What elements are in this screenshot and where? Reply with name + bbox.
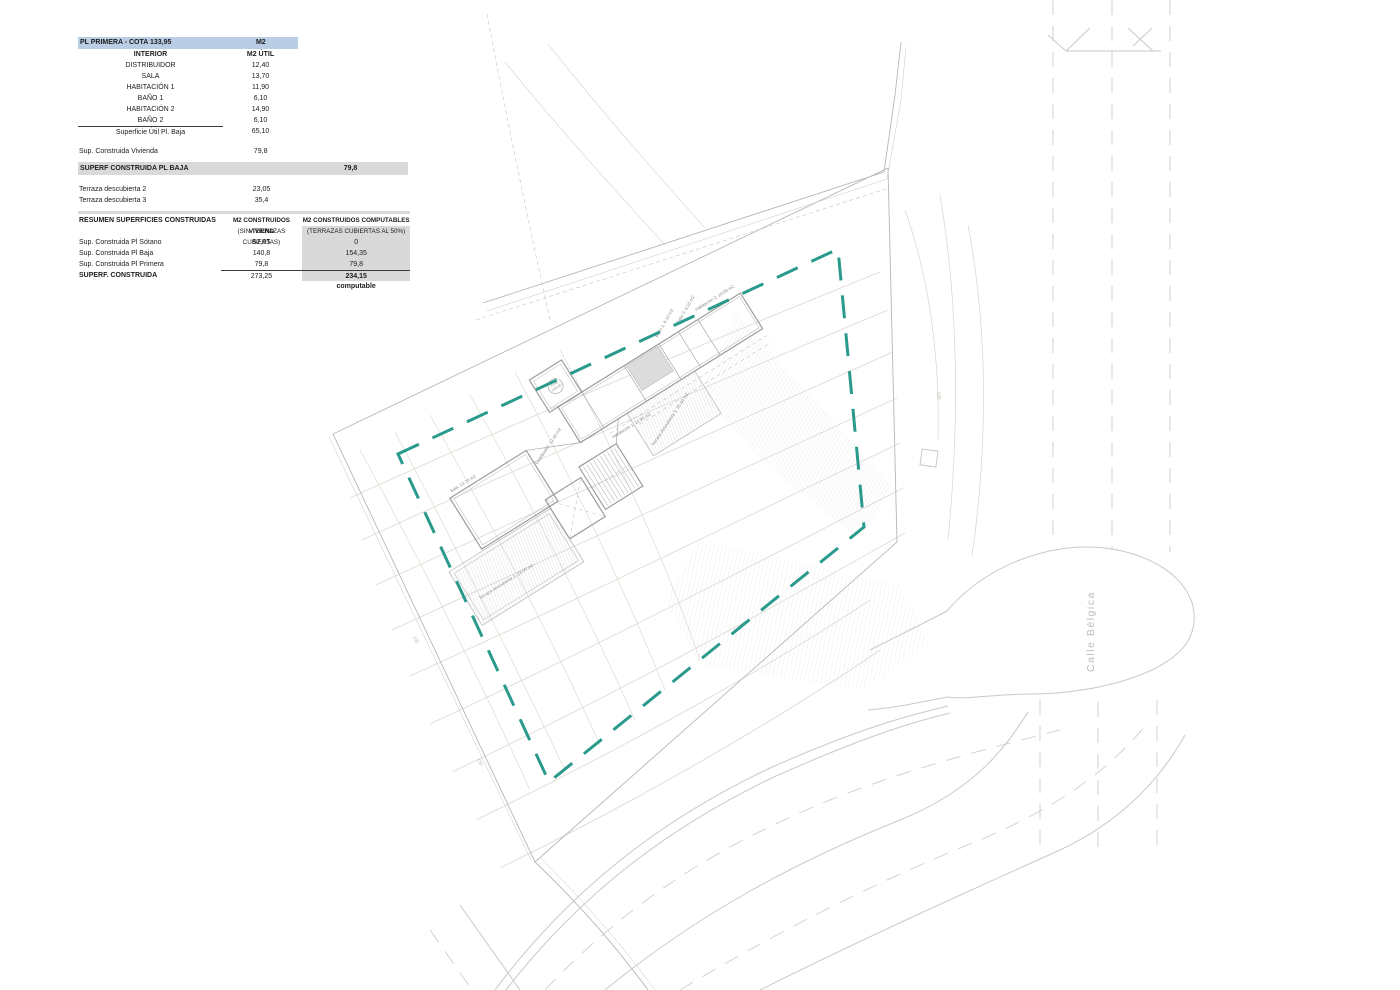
site-plan-sheet: 135 130 130 Calle xyxy=(0,0,1400,990)
road-bottom xyxy=(430,706,1185,990)
table-pl-primera-header: PL PRIMERA - COTA 133,95 M2 xyxy=(78,37,298,49)
roof-shaded-block xyxy=(627,346,674,390)
contour-label-130-right: 130 xyxy=(936,392,942,401)
table-row: SALA 13,70 xyxy=(78,71,298,82)
plot-limit-dashed xyxy=(398,249,864,782)
table-row: Terraza descubierta 2 23,05 xyxy=(78,184,408,195)
t3-footnote-row: computable xyxy=(78,281,410,292)
table-row: HABITACIÓN 2 14,90 xyxy=(78,104,298,115)
t1-header-title: PL PRIMERA - COTA 133,95 xyxy=(78,37,224,49)
slope-hatch-areas xyxy=(665,310,930,690)
t2-header: SUPERF CONSTRUIDA PL BAJA 79,8 xyxy=(78,162,408,175)
road-calle-belgica: Calle Bélgica xyxy=(868,0,1194,848)
table-resumen: RESUMEN SUPERFICIES CONSTRUIDAS M2 CONST… xyxy=(78,211,410,292)
table-row: HABITACIÓN 1 11,90 xyxy=(78,82,298,93)
bridge-icon xyxy=(1048,28,1161,51)
t3-subheader: (SIN TERRAZAS CUBIERTAS) (TERRAZAS CUBIE… xyxy=(78,226,410,237)
table-row: BAÑO 2 6,10 xyxy=(78,115,298,126)
table-row: BAÑO 1 6,10 xyxy=(78,93,298,104)
street-name-label: Calle Bélgica xyxy=(1085,591,1097,672)
t1-header-m2: M2 xyxy=(224,37,298,49)
utility-box xyxy=(920,449,938,467)
t3-total-row: SUPERF. CONSTRUIDA 273,25 234,15 xyxy=(78,270,410,281)
table-row: Sup. Construida Pl Primera 79,8 79,8 xyxy=(78,259,410,270)
terrace-2-hatch xyxy=(449,508,584,625)
table-row: Sup. Construida Pl Sótano 52,65 0 xyxy=(78,237,410,248)
contour-lines: 135 130 130 xyxy=(350,44,984,868)
t3-header: RESUMEN SUPERFICIES CONSTRUIDAS M2 CONST… xyxy=(78,215,410,226)
table-row: Sup. Construida Pl Baja 140,8 154,35 xyxy=(78,248,410,259)
slope-hatch-lower xyxy=(665,540,930,690)
table-row-total-vivienda: Sup. Construida Vivienda 79,8 xyxy=(78,146,298,157)
contour-label-135: 135 xyxy=(412,635,420,644)
table-row: DISTRIBUIDOR 12,40 xyxy=(78,60,298,71)
table-superf-pl-baja: SUPERF CONSTRUIDA PL BAJA 79,8 Terraza d… xyxy=(78,162,408,206)
table-pl-primera: PL PRIMERA - COTA 133,95 M2 INTERIOR M2 … xyxy=(78,37,298,157)
table-row: INTERIOR M2 ÚTIL xyxy=(78,49,298,60)
table-row: Terraza descubierta 3 35,4 xyxy=(78,195,408,206)
staircase xyxy=(579,444,643,510)
table-row-subtotal: Superficie Útil Pl. Baja 65,10 xyxy=(78,126,298,137)
